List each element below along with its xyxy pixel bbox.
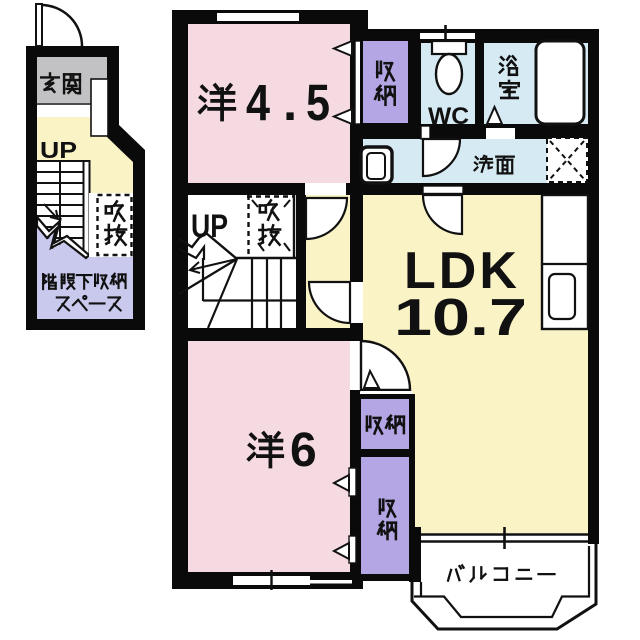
svg-text:5: 5 <box>306 74 330 131</box>
svg-text:WC: WC <box>428 103 469 130</box>
svg-text:6: 6 <box>290 424 317 477</box>
svg-text:UP: UP <box>40 137 77 163</box>
svg-text:.: . <box>283 74 297 131</box>
svg-text:10.7: 10.7 <box>394 289 527 347</box>
svg-text:4: 4 <box>246 74 271 131</box>
svg-text:UP: UP <box>191 208 228 244</box>
